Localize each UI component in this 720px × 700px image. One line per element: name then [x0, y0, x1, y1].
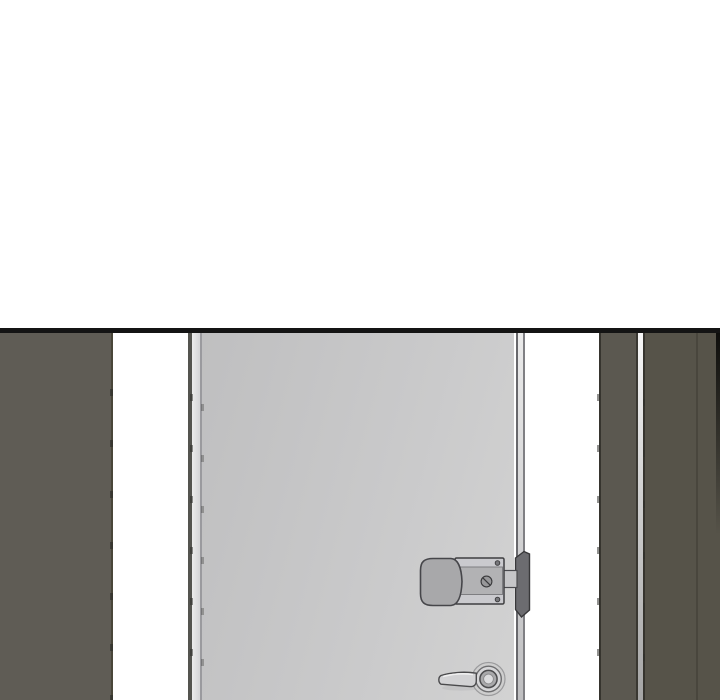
blank-margin — [0, 0, 720, 328]
right-edge-shadow — [716, 333, 720, 700]
right-wall-panel-far — [645, 333, 720, 700]
comic-panel — [0, 0, 720, 700]
deadbolt-lock — [410, 543, 538, 627]
door-handle — [428, 653, 520, 700]
right-wall-panel-near — [599, 333, 636, 700]
lock-body — [421, 559, 463, 606]
door-hinge-edge-marks — [201, 360, 204, 700]
left-wall-edge-marks — [110, 345, 113, 700]
plate-screw-bottom — [495, 597, 500, 602]
latch-bolt — [503, 571, 517, 588]
door-latch-edge — [516, 333, 525, 700]
frame-edge-marks — [190, 350, 193, 700]
wall-seam-line — [696, 333, 698, 700]
lock-plate-band — [457, 567, 503, 595]
handle-collar-center — [484, 674, 494, 684]
left-wall-panel — [0, 333, 113, 700]
plate-screw-top — [495, 561, 500, 566]
door-leaf — [202, 333, 514, 700]
right-wall-edge-marks — [597, 350, 600, 700]
